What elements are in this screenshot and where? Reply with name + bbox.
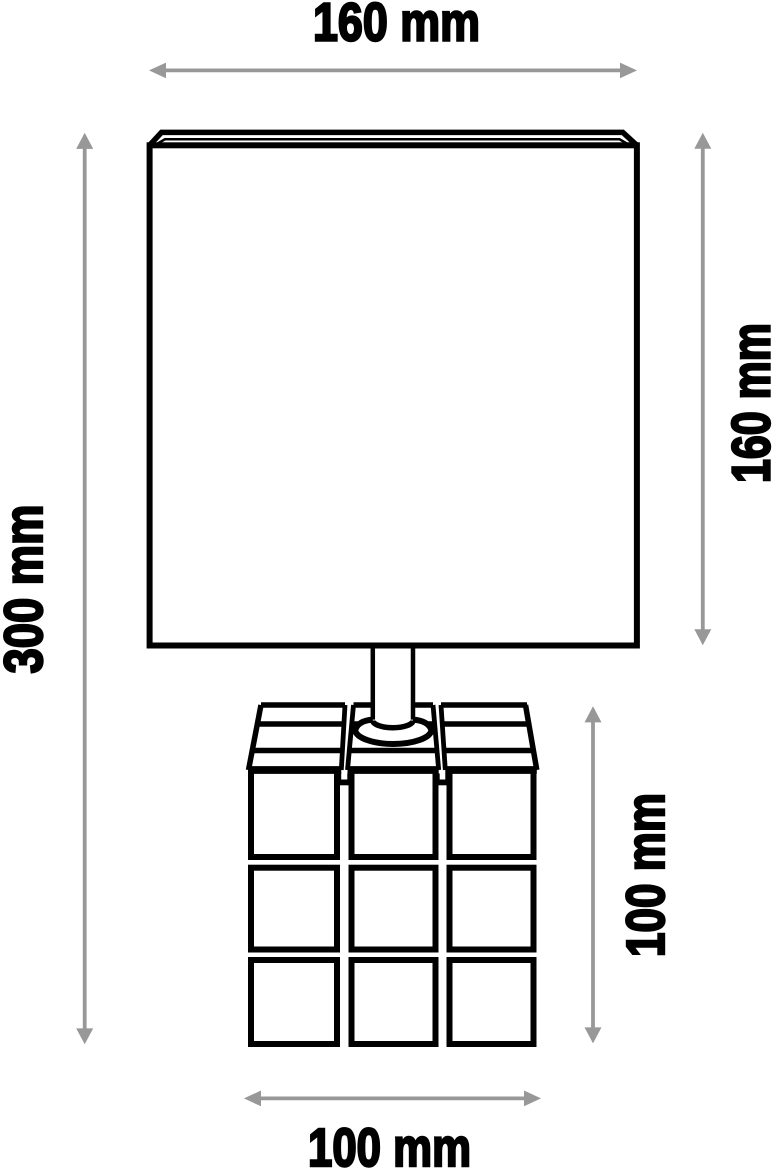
svg-text:100 mm: 100 mm bbox=[308, 1118, 471, 1169]
svg-text:160 mm: 160 mm bbox=[722, 323, 774, 483]
svg-text:300 mm: 300 mm bbox=[0, 505, 54, 674]
svg-text:100 mm: 100 mm bbox=[616, 793, 676, 957]
svg-text:160 mm: 160 mm bbox=[313, 0, 480, 53]
